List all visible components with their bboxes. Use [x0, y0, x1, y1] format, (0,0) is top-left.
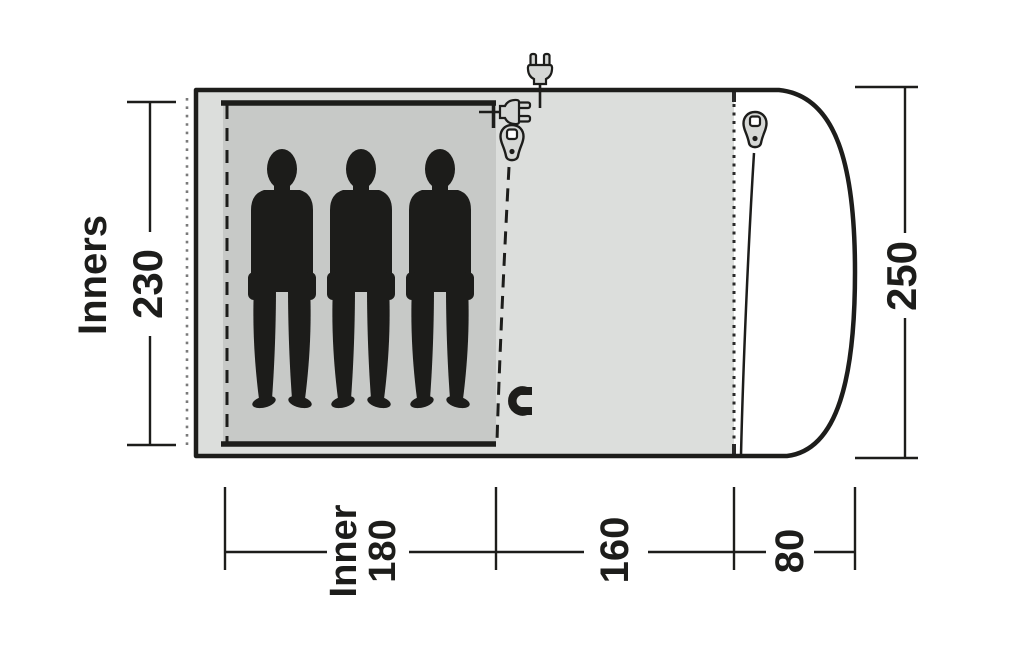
floorplan-canvas: 230 Inners 250 Inner 180 160 80 — [0, 0, 1024, 660]
dimension-bottom-chain: Inner 180 160 80 — [225, 487, 855, 597]
inners-label: Inners — [71, 215, 115, 335]
dimension-inner-width: 230 — [124, 102, 176, 445]
svg-text:Inner: Inner — [323, 504, 365, 597]
dim-label-230: 230 — [124, 249, 171, 319]
dim-label-250: 250 — [878, 241, 925, 311]
dim-label-80: 80 — [768, 529, 812, 574]
tent-floorplan-diagram: 230 Inners 250 Inner 180 160 80 — [0, 0, 1024, 660]
dim-label-160: 160 — [593, 517, 637, 584]
dim-label-inner-180: Inner 180 — [323, 504, 404, 597]
dimension-total-width: 250 — [855, 87, 925, 458]
svg-text:180: 180 — [362, 519, 404, 582]
